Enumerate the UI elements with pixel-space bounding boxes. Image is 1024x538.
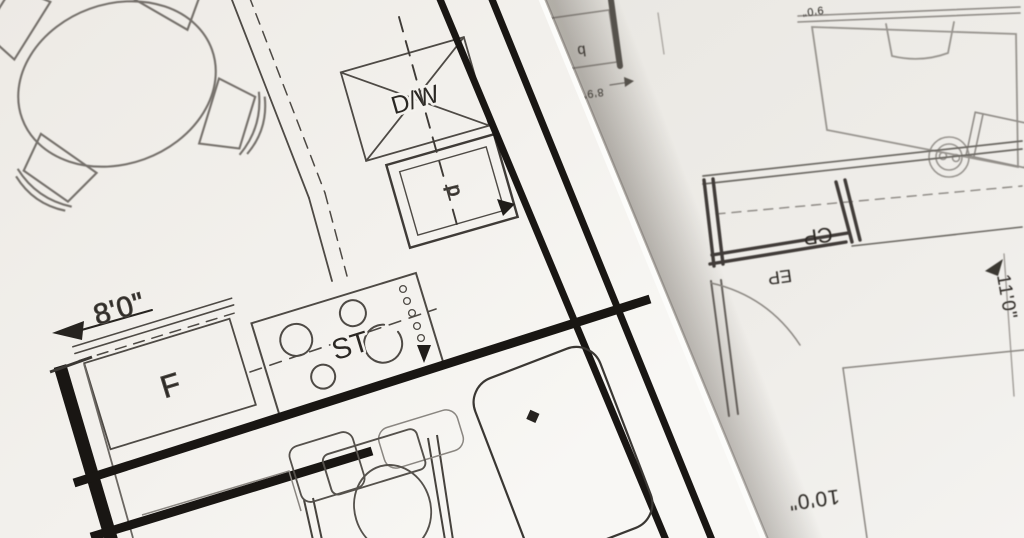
- floorplan-scene: 9'0": [0, 0, 1024, 538]
- panel-label: EP: [767, 265, 794, 288]
- closet-label: CP: [802, 222, 834, 249]
- blueprint-photo: 9'0": [0, 0, 1024, 538]
